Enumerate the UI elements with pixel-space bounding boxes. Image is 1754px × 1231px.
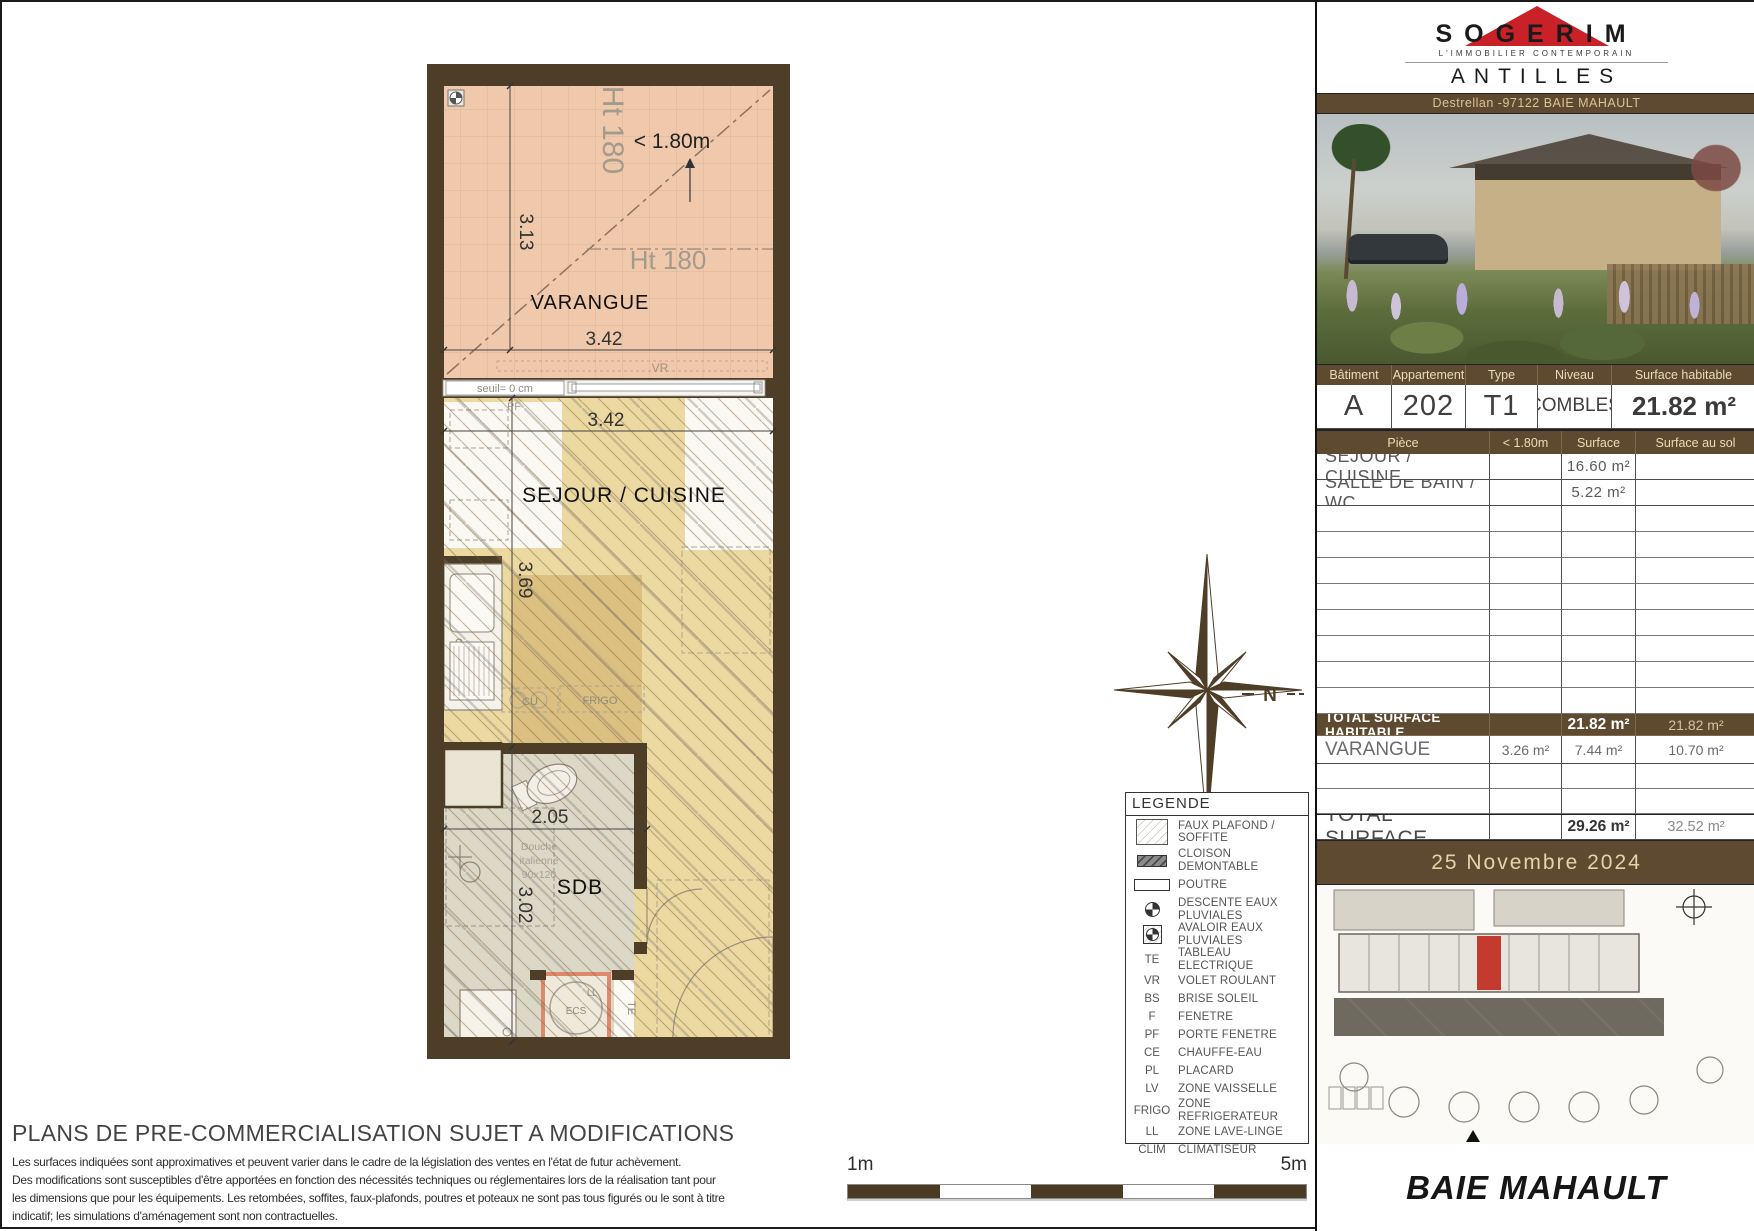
table-row-empty <box>1317 610 1754 636</box>
info-panel: SOGERIM L'IMMOBILIER CONTEMPORAIN ANTILL… <box>1315 2 1754 1231</box>
rooms-table-header: Pièce < 1.80m Surface Surface au sol <box>1317 429 1754 455</box>
lt180-label: < 1.80m <box>634 130 710 153</box>
brand-region: ANTILLES <box>1317 65 1754 89</box>
avaloir-eaux-icon <box>1143 925 1162 944</box>
unit-table-header: Bâtiment Appartement Type Niveau Surface… <box>1317 365 1754 385</box>
table-row-empty <box>1317 532 1754 558</box>
table-row: SALLE DE BAIN / WC 5.22 m² <box>1317 480 1754 506</box>
vegetation-shape <box>1317 259 1754 364</box>
legend-item: LLZONE LAVE-LINGE <box>1126 1123 1308 1141</box>
scale-min-label: 1m <box>847 1154 873 1176</box>
table-row-empty <box>1317 789 1754 814</box>
red-tree-shape <box>1685 139 1747 197</box>
legend-item: TETABLEAU ELECTRIQUE <box>1126 947 1308 972</box>
house-shape <box>1475 164 1721 270</box>
legend-item: PLPLACARD <box>1126 1062 1308 1080</box>
city-name: BAIE MAHAULT <box>1317 1144 1754 1231</box>
sliding-door <box>572 384 760 391</box>
pf-label: PF <box>507 401 521 413</box>
site-plan <box>1317 885 1754 1144</box>
douche-label-2: italienne <box>519 855 558 867</box>
room-label-sdb: SDB <box>557 876 603 899</box>
disclaimer-title: PLANS DE PRE-COMMERCIALISATION SUJET A M… <box>12 1120 772 1147</box>
te-label: TE <box>625 1001 637 1015</box>
legend-item: DESCENTE EAUX PLUVIALES <box>1126 897 1308 922</box>
car-shape <box>1348 234 1448 260</box>
legend-item: AVALOIR EAUX PLUVIALES <box>1126 922 1308 947</box>
table-row-empty <box>1317 558 1754 584</box>
scale-max-label: 5m <box>1281 1154 1307 1176</box>
table-row: SEJOUR / CUISINE 16.60 m² <box>1317 454 1754 480</box>
surface-habitable-value: 21.82 m² <box>1612 385 1754 429</box>
legend-item: PFPORTE FENETRE <box>1126 1026 1308 1044</box>
descente-eaux-icon <box>1145 902 1160 917</box>
ht180-horizontal-label: Ht 180 <box>630 245 707 275</box>
table-row-empty <box>1317 506 1754 532</box>
address-bar: Destrellan -97122 BAIE MAHAULT <box>1317 94 1754 114</box>
legend-item: FAUX PLAFOND / SOFFITE <box>1126 816 1308 848</box>
unit-table-values: A 202 T1 COMBLES 21.82 m² <box>1317 385 1754 429</box>
table-row-empty <box>1317 636 1754 662</box>
avaloir-icon <box>448 90 464 106</box>
legend-title: LEGENDE <box>1126 793 1308 816</box>
scale-bar: 1m 5m <box>847 1154 1307 1199</box>
ht180-vertical-label: Ht 180 <box>596 86 629 174</box>
varangue-row: VARANGUE 3.26 m² 7.44 m² 10.70 m² <box>1317 736 1754 764</box>
table-row-empty <box>1317 764 1754 789</box>
scale-bar-segments <box>847 1184 1307 1199</box>
legend-item: POUTRE <box>1126 873 1308 897</box>
douche-label-3: 90x120 <box>522 869 557 881</box>
table-row-empty <box>1317 688 1754 714</box>
faux-plafond-swatch <box>1136 819 1168 845</box>
dim-2-05: 2.05 <box>532 807 569 828</box>
compass-rose: N <box>1114 554 1304 830</box>
table-row-empty <box>1317 662 1754 688</box>
legend: LEGENDE FAUX PLAFOND / SOFFITE CLOISON D… <box>1125 792 1309 1144</box>
niveau-value: COMBLES <box>1538 385 1612 429</box>
vr-label: VR <box>652 361 669 375</box>
legend-item: CLOISON DEMONTABLE <box>1126 848 1308 873</box>
legend-item: LVZONE VAISSELLE <box>1126 1080 1308 1098</box>
highlighted-unit <box>1477 936 1501 990</box>
cu-label: CU <box>522 696 538 708</box>
type-value: T1 <box>1466 385 1538 429</box>
brand-name: SOGERIM <box>1317 20 1754 49</box>
ll-label: LL <box>587 988 597 998</box>
dim-3-13: 3.13 <box>515 214 536 251</box>
brand-tagline: L'IMMOBILIER CONTEMPORAIN <box>1317 49 1754 58</box>
frigo-label: FRIGO <box>583 695 618 707</box>
plan-sheet: Ht 180 Ht 180 < 1.80m 3.13 VARANGUE 3.42… <box>0 0 1754 1229</box>
ecs-label: ECS <box>566 1006 587 1017</box>
cloison-swatch <box>1137 855 1167 867</box>
legend-item: CECHAUFFE-EAU <box>1126 1044 1308 1062</box>
poutre-swatch <box>1134 879 1170 891</box>
appartement-value: 202 <box>1392 385 1466 429</box>
floor-plan: Ht 180 Ht 180 < 1.80m 3.13 VARANGUE 3.42… <box>2 2 1315 1231</box>
legend-item: FRIGOZONE REFRIGERATEUR <box>1126 1098 1308 1123</box>
legend-item: BSBRISE SOLEIL <box>1126 990 1308 1008</box>
north-label: N <box>1263 685 1277 706</box>
legend-item: VRVOLET ROULANT <box>1126 972 1308 990</box>
closet <box>444 749 502 807</box>
legend-item: FFENETRE <box>1126 1008 1308 1026</box>
disclaimer: PLANS DE PRE-COMMERCIALISATION SUJET A M… <box>12 1120 772 1225</box>
room-label-sejour: SEJOUR / CUISINE <box>522 484 726 507</box>
divider <box>1405 62 1668 63</box>
seuil-label: seuil= 0 cm <box>477 383 533 395</box>
dim-3-42-varangue: 3.42 <box>586 329 623 350</box>
douche-label-1: Douche <box>521 841 557 853</box>
dim-3-42-sejour: 3.42 <box>588 410 625 431</box>
brand-header: SOGERIM L'IMMOBILIER CONTEMPORAIN ANTILL… <box>1317 2 1754 94</box>
batiment-value: A <box>1317 385 1392 429</box>
total-surface-row: TOTAL SURFACE 29.26 m² 32.52 m² <box>1317 814 1754 840</box>
table-row-empty <box>1317 584 1754 610</box>
room-label-varangue: VARANGUE <box>531 292 650 314</box>
palm-tree-shape <box>1326 124 1396 176</box>
dim-3-02: 3.02 <box>514 887 535 924</box>
dim-3-69: 3.69 <box>514 562 535 599</box>
date-bar: 25 Novembre 2024 <box>1317 840 1754 885</box>
building-photo <box>1317 114 1754 365</box>
total-habitable-row: TOTAL SURFACE HABITABLE 21.82 m² 21.82 m… <box>1317 714 1754 736</box>
